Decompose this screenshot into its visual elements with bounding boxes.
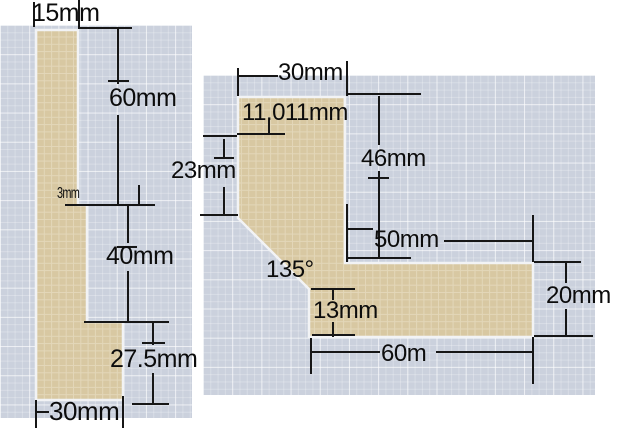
dim-label-width-bottom-left-part[interactable]: 30mm xyxy=(49,398,119,425)
dim-label-width-top-right-part[interactable]: 30mm xyxy=(278,60,343,85)
dim-label-arm-top-length[interactable]: 50mm xyxy=(374,227,439,252)
dim-label-height-upper-left-part[interactable]: 60mm xyxy=(109,85,176,111)
dim-label-arm-thickness[interactable]: 20mm xyxy=(546,283,611,308)
dim-label-width-top-left-part[interactable]: 15mm xyxy=(32,0,99,26)
dim-label-height-lower-left-part[interactable]: 27.5mm xyxy=(110,346,197,372)
cad-drawing-canvas: 15mm 60mm 3mm 40mm 27.5mm 30mm 30mm 11.0… xyxy=(0,0,620,429)
dim-label-notch-height[interactable]: 13mm xyxy=(313,298,378,323)
dim-label-chamfer-length[interactable]: 11.011mm xyxy=(242,100,348,125)
dim-label-chamfer-angle[interactable]: 135° xyxy=(266,257,314,282)
dim-label-height-middle-left-part[interactable]: 40mm xyxy=(106,243,173,269)
dim-label-arm-bottom-length[interactable]: 60m xyxy=(381,341,426,366)
dim-label-step-left-part[interactable]: 3mm xyxy=(57,186,79,203)
dim-label-height-right-right-part[interactable]: 46mm xyxy=(361,146,426,171)
dim-label-height-left-right-part[interactable]: 23mm xyxy=(171,158,236,183)
